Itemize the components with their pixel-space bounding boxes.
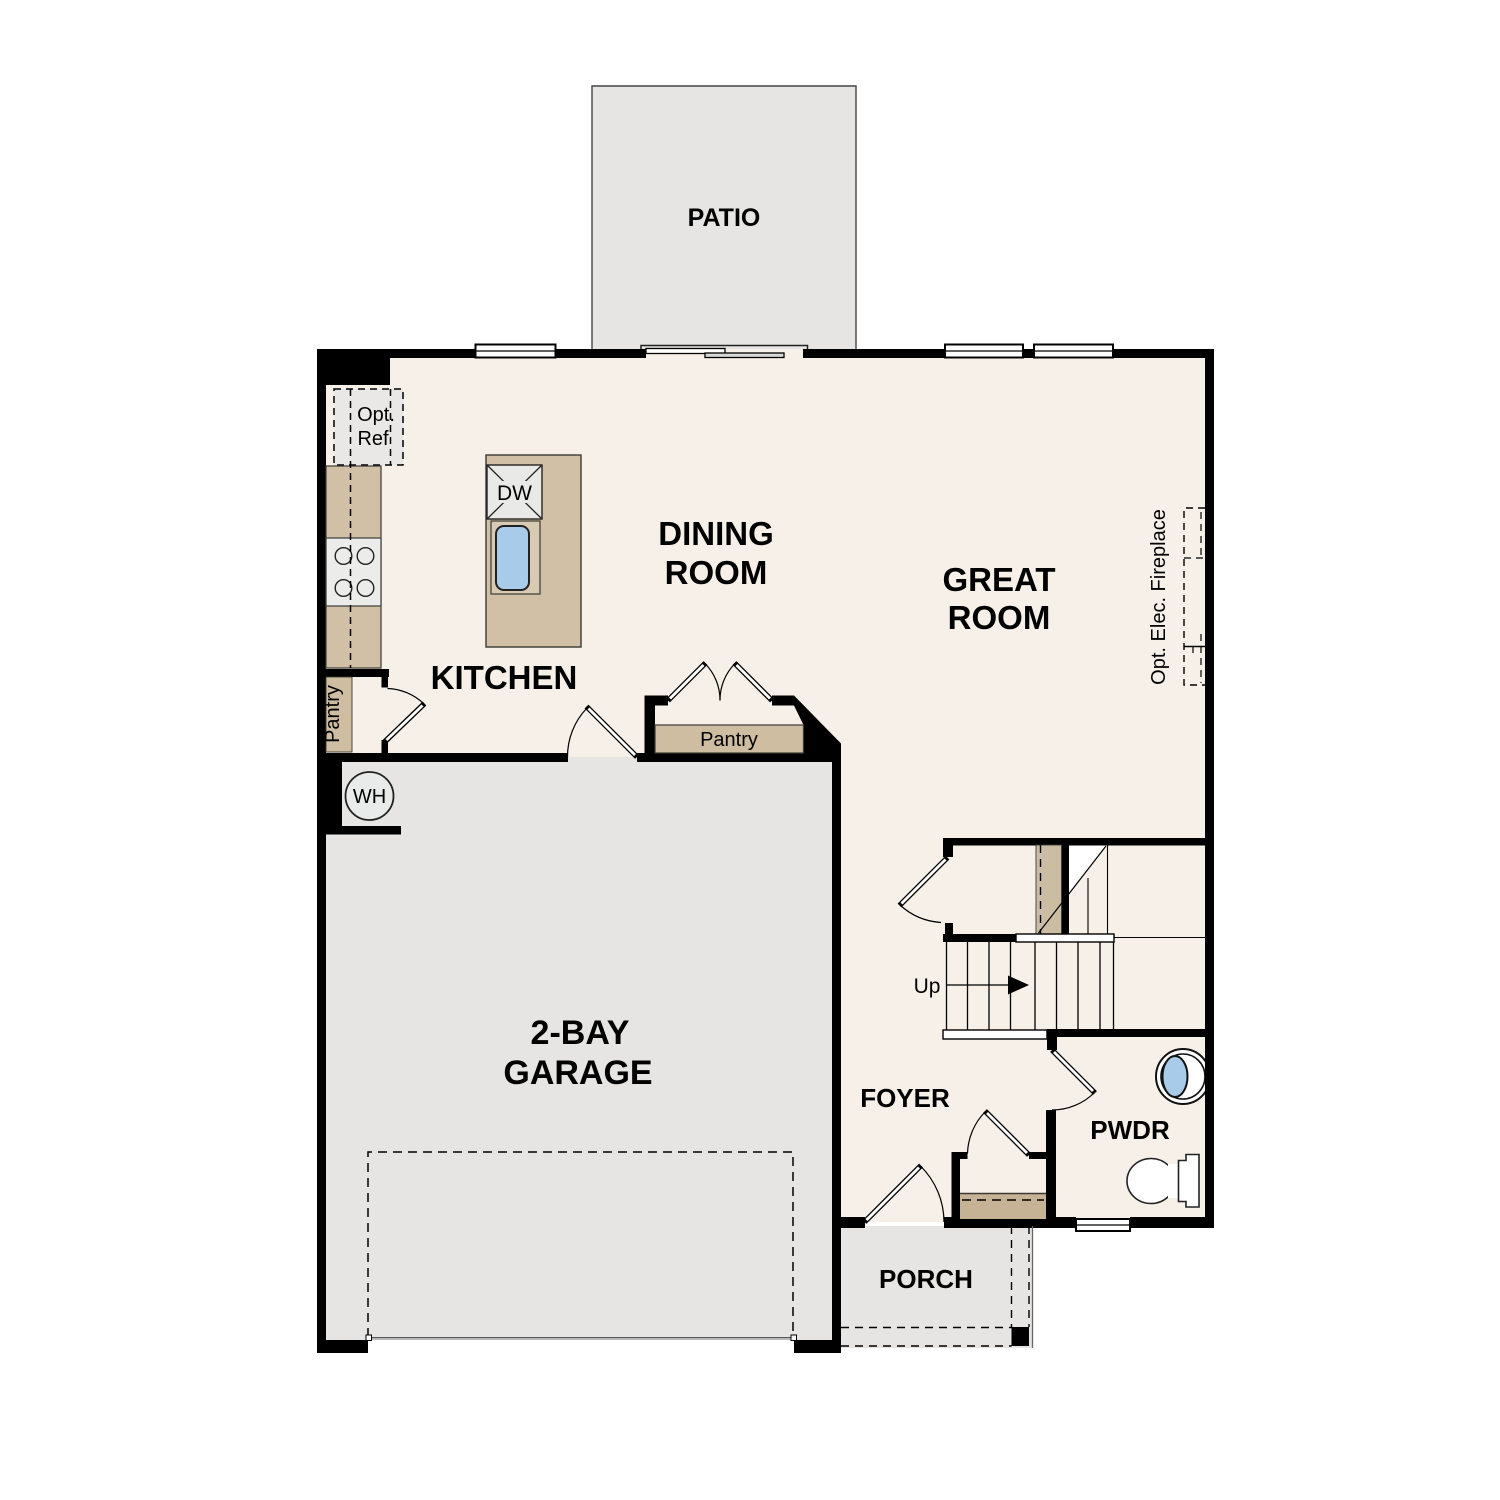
svg-text:DW: DW [497,482,532,505]
svg-text:PORCH: PORCH [879,1264,973,1294]
svg-text:Opt. Elec. Fireplace: Opt. Elec. Fireplace [1148,509,1170,685]
svg-text:GREAT: GREAT [942,561,1055,598]
svg-text:Pantry: Pantry [322,685,344,743]
svg-text:PWDR: PWDR [1090,1115,1170,1145]
svg-text:2-BAY: 2-BAY [531,1014,630,1052]
svg-text:Ref: Ref [357,428,389,450]
svg-text:ROOM: ROOM [948,599,1051,636]
svg-text:GARAGE: GARAGE [503,1054,652,1092]
svg-text:FOYER: FOYER [860,1083,950,1113]
svg-text:KITCHEN: KITCHEN [431,659,578,696]
svg-text:Opt.: Opt. [357,404,395,426]
svg-text:DINING: DINING [658,515,774,552]
svg-text:WH: WH [353,786,386,808]
svg-text:Up: Up [914,975,941,998]
svg-text:Pantry: Pantry [700,729,758,751]
svg-text:PATIO: PATIO [688,204,761,232]
svg-text:ROOM: ROOM [665,554,768,591]
